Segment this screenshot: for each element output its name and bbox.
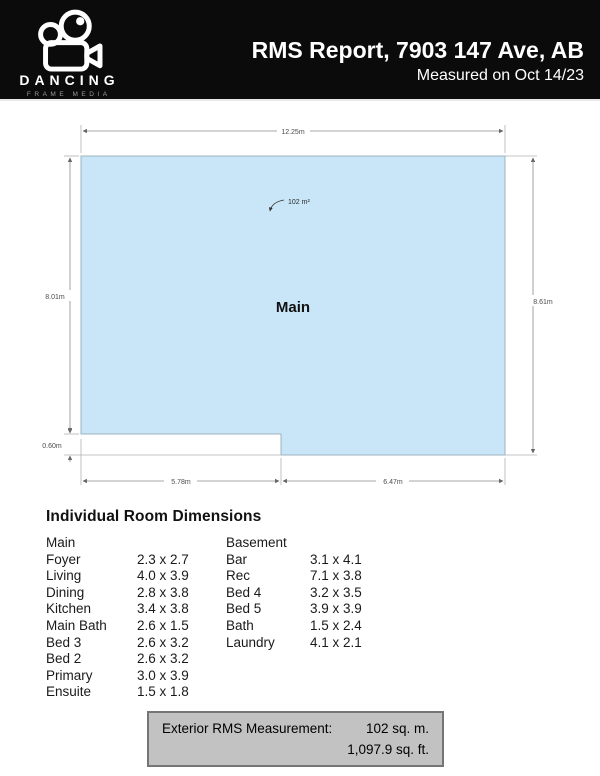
room-name: Foyer <box>46 552 137 569</box>
room-dims: 3.4 x 3.8 <box>137 601 189 618</box>
room-name: Bed 5 <box>226 601 310 618</box>
basement-column: Basement Bar 3.1 x 4.1 Rec 7.1 x 3.8 Bed… <box>226 535 406 701</box>
room-name: Dining <box>46 585 137 602</box>
room-dims: 2.6 x 3.2 <box>137 635 189 652</box>
rms-report-page: DANCING FRAME MEDIA RMS Report, 7903 147… <box>0 0 600 776</box>
table-row: Bath 1.5 x 2.4 <box>226 618 406 635</box>
floor-plan: 12.25m 8.01m 8.61m 0.60m 5.78m 6.47m 102… <box>0 103 600 500</box>
table-row: Living 4.0 x 3.9 <box>46 568 226 585</box>
dim-bottom-right-width: 6.47m <box>383 479 403 486</box>
room-dims: 2.6 x 3.2 <box>137 651 189 668</box>
floor-plan-drawing: 12.25m 8.01m 8.61m 0.60m 5.78m 6.47m 102… <box>0 103 600 500</box>
table-row: Bed 3 2.6 x 3.2 <box>46 635 226 652</box>
room-name: Bed 3 <box>46 635 137 652</box>
dim-bottom-left-width: 5.78m <box>171 479 191 486</box>
room-dims: 3.9 x 3.9 <box>310 601 362 618</box>
dim-left-height: 8.01m <box>45 294 65 301</box>
room-dimensions-heading: Individual Room Dimensions <box>46 508 566 526</box>
room-name: Kitchen <box>46 601 137 618</box>
exterior-measurement-box: Exterior RMS Measurement: 102 sq. m. 1,0… <box>147 711 444 767</box>
table-row: Kitchen 3.4 x 3.8 <box>46 601 226 618</box>
table-row: Bar 3.1 x 4.1 <box>226 552 406 569</box>
table-row: Bed 4 3.2 x 3.5 <box>226 585 406 602</box>
room-dims: 1.5 x 1.8 <box>137 684 189 701</box>
exterior-measurement-imperial: 1,097.9 sq. ft. <box>347 742 429 757</box>
floor-area-label: 102 m² <box>288 199 310 206</box>
main-floor-label: Main <box>276 299 310 316</box>
table-row: Bed 5 3.9 x 3.9 <box>226 601 406 618</box>
table-row: Dining 2.8 x 3.8 <box>46 585 226 602</box>
room-name: Bath <box>226 618 310 635</box>
main-floor-column: Main Foyer 2.3 x 2.7 Living 4.0 x 3.9 Di… <box>46 535 226 701</box>
table-row: Main Bath 2.6 x 1.5 <box>46 618 226 635</box>
dim-notch-height: 0.60m <box>42 443 62 450</box>
group-label-main: Main <box>46 535 226 552</box>
room-dims: 2.6 x 1.5 <box>137 618 189 635</box>
report-date: Measured on Oct 14/23 <box>252 66 584 86</box>
room-dims: 3.2 x 3.5 <box>310 585 362 602</box>
room-dimensions-section: Individual Room Dimensions Main Foyer 2.… <box>46 508 566 701</box>
table-row: Laundry 4.1 x 2.1 <box>226 635 406 652</box>
room-dims: 1.5 x 2.4 <box>310 618 362 635</box>
room-dims: 3.0 x 3.9 <box>137 668 189 685</box>
room-dims: 2.8 x 3.8 <box>137 585 189 602</box>
company-logo: DANCING FRAME MEDIA <box>12 8 122 98</box>
logo-name: DANCING <box>12 74 127 87</box>
room-dims: 3.1 x 4.1 <box>310 552 362 569</box>
report-title-block: RMS Report, 7903 147 Ave, AB Measured on… <box>252 37 584 86</box>
exterior-measurement-metric: 102 sq. m. <box>366 718 429 739</box>
room-name: Bed 2 <box>46 651 137 668</box>
report-header: DANCING FRAME MEDIA RMS Report, 7903 147… <box>0 0 600 101</box>
room-dims: 4.1 x 2.1 <box>310 635 362 652</box>
room-name: Main Bath <box>46 618 137 635</box>
exterior-measurement-label: Exterior RMS Measurement: <box>162 718 332 739</box>
table-row: Foyer 2.3 x 2.7 <box>46 552 226 569</box>
room-dimensions-table: Main Foyer 2.3 x 2.7 Living 4.0 x 3.9 Di… <box>46 535 566 701</box>
room-name: Bar <box>226 552 310 569</box>
room-dims: 2.3 x 2.7 <box>137 552 189 569</box>
room-dims: 4.0 x 3.9 <box>137 568 189 585</box>
room-name: Living <box>46 568 137 585</box>
video-camera-icon <box>25 8 109 74</box>
report-title: RMS Report, 7903 147 Ave, AB <box>252 37 584 63</box>
room-name: Primary <box>46 668 137 685</box>
room-name: Ensuite <box>46 684 137 701</box>
table-row: Ensuite 1.5 x 1.8 <box>46 684 226 701</box>
room-dims: 7.1 x 3.8 <box>310 568 362 585</box>
table-row: Bed 2 2.6 x 3.2 <box>46 651 226 668</box>
room-name: Rec <box>226 568 310 585</box>
group-label-basement: Basement <box>226 535 406 552</box>
dim-top-width: 12.25m <box>281 129 305 136</box>
room-name: Bed 4 <box>226 585 310 602</box>
logo-subtitle: FRAME MEDIA <box>12 91 126 98</box>
table-row: Primary 3.0 x 3.9 <box>46 668 226 685</box>
dim-right-height: 8.61m <box>533 299 553 306</box>
table-row: Rec 7.1 x 3.8 <box>226 568 406 585</box>
room-name: Laundry <box>226 635 310 652</box>
